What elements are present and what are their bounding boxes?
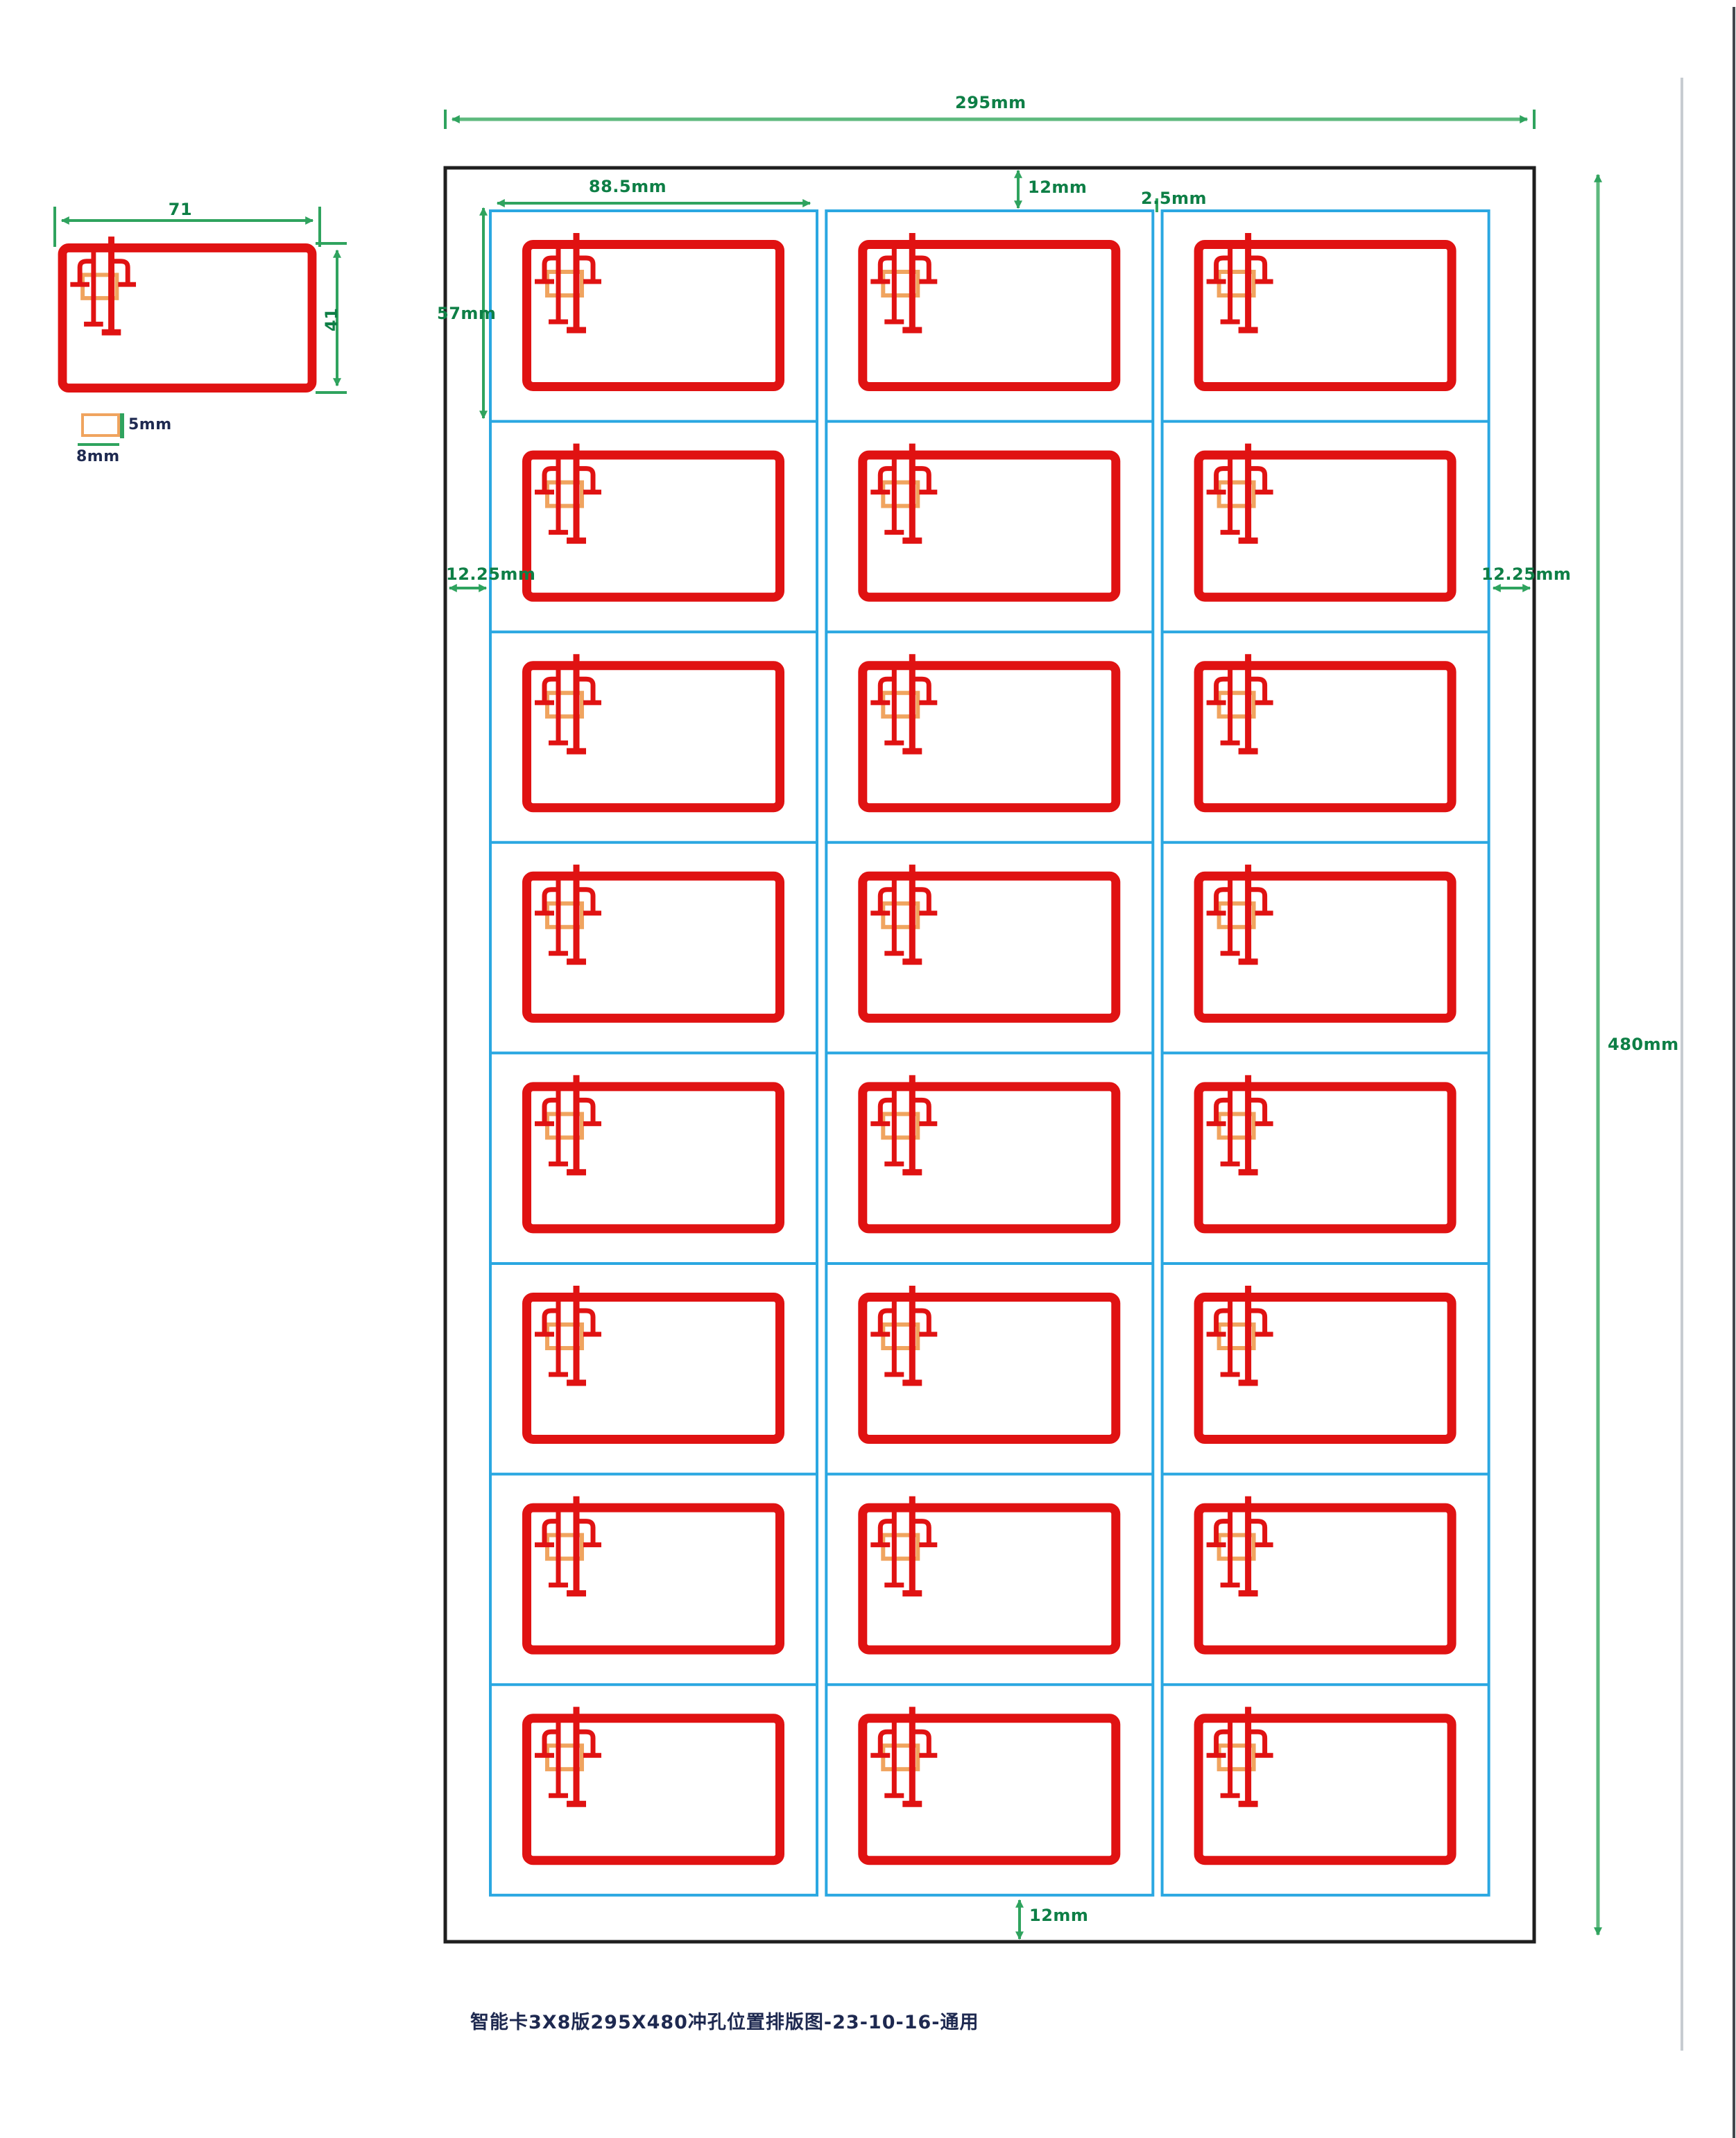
punch-card — [1198, 1707, 1452, 1861]
punch-card — [527, 1075, 780, 1229]
drawing-title: 智能卡3X8版295X480冲孔位置排版图-23-10-16-通用 — [470, 2007, 979, 2034]
dim-label-detail-width: 71 — [160, 200, 201, 219]
punch-card — [527, 865, 780, 1019]
punch-card — [527, 233, 780, 387]
detail-card — [62, 236, 312, 388]
punch-card — [1198, 654, 1452, 807]
dim-label-top-margin: 12mm — [1028, 178, 1087, 197]
dim-label-cell-height: 57mm — [437, 304, 496, 323]
punch-card — [863, 233, 1116, 387]
punch-card — [863, 865, 1116, 1019]
dim-label-bottom-margin: 12mm — [1029, 1906, 1088, 1925]
dim-label-sheet-height: 480mm — [1608, 1035, 1679, 1054]
dim-label-left-margin: 12.25mm — [446, 564, 535, 584]
chip-legend-width-label: 8mm — [76, 448, 120, 465]
punch-card — [1198, 865, 1452, 1019]
dim-label-detail-height: 41 — [322, 308, 341, 331]
punch-card — [1198, 1075, 1452, 1229]
punch-card — [863, 1497, 1116, 1650]
punch-card — [1198, 444, 1452, 598]
punch-card — [863, 1075, 1116, 1229]
punch-card — [527, 1707, 780, 1861]
punch-card — [527, 1497, 780, 1650]
dim-label-column-gap: 2.5mm — [1141, 189, 1207, 208]
card-grid — [490, 211, 1489, 1895]
punch-card — [863, 1707, 1116, 1861]
punch-card — [527, 654, 780, 807]
chip-legend-rect — [83, 415, 119, 436]
punch-card — [863, 654, 1116, 807]
dim-label-cell-width: 88.5mm — [586, 177, 669, 196]
punch-card — [527, 444, 780, 598]
punch-card — [1198, 1497, 1452, 1650]
sheet-outline — [445, 168, 1534, 1942]
chip-legend-height-label: 5mm — [128, 416, 172, 433]
dim-label-right-margin: 12.25mm — [1481, 564, 1571, 584]
drawing-canvas: 295mm 88.5mm 12mm 2.5mm 57mm 12.25mm 12.… — [0, 0, 1736, 2138]
punch-card — [1198, 233, 1452, 387]
punch-card — [863, 444, 1116, 598]
dim-label-sheet-width: 295mm — [955, 93, 1024, 112]
punch-card — [863, 1286, 1116, 1440]
punch-card — [1198, 1286, 1452, 1440]
layout-drawing — [0, 0, 1736, 2138]
punch-card — [527, 1286, 780, 1440]
